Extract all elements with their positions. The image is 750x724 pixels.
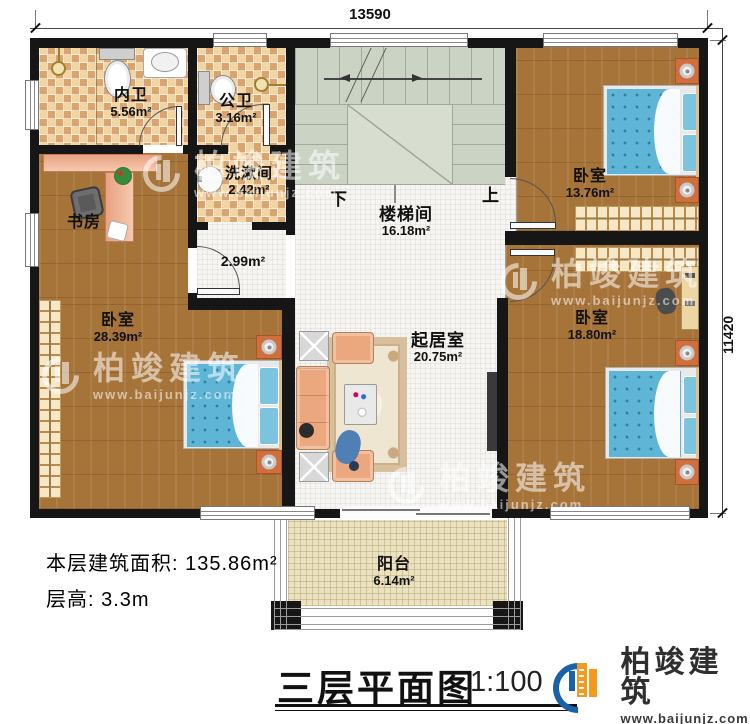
wall <box>270 145 286 154</box>
desk <box>43 154 158 172</box>
dresser <box>681 266 699 330</box>
dimension-value-top: 13590 <box>330 6 410 23</box>
nightstand <box>675 459 699 485</box>
balcony-rail <box>286 518 287 629</box>
bed <box>605 367 699 459</box>
sliding-door-panel <box>416 513 490 515</box>
balcony-rail <box>514 518 515 629</box>
lamp-icon <box>262 455 277 470</box>
bed <box>183 360 284 449</box>
balcony-rail <box>274 624 521 625</box>
bed-blanket <box>654 89 680 174</box>
balcony-rail <box>280 518 281 629</box>
floor-plan-canvas: 内卫 5.56m² 公卫 3.16m² 洗漱间 2.42m² 2.99m² 书房… <box>0 0 750 724</box>
lamp-icon <box>262 340 277 355</box>
room-label-bedroom-left: 卧室 28.39m² <box>94 312 142 344</box>
window <box>330 33 468 47</box>
wall <box>30 38 213 48</box>
room-label-washroom: 洗漱间 2.42m² <box>225 166 273 197</box>
room-area: 18.80m² <box>568 328 616 343</box>
lamp-icon <box>680 465 695 480</box>
room-area: 6.14m² <box>373 574 414 589</box>
stair-treads-top <box>295 47 505 104</box>
room-label-inner-bath: 内卫 5.56m² <box>110 87 151 119</box>
room-label-public-bath: 公卫 3.16m² <box>215 93 256 125</box>
room-area: 16.18m² <box>379 224 433 239</box>
sliding-door-panel <box>342 509 420 511</box>
room-name: 楼梯间 <box>379 205 433 224</box>
wall <box>30 130 39 213</box>
room-name: 卧室 <box>568 310 616 328</box>
title-underline <box>275 710 577 711</box>
floor-height-text: 层高: 3.3m <box>46 583 150 612</box>
shower-pipe <box>58 47 60 61</box>
lamp-icon <box>680 64 695 79</box>
dresser-item <box>685 273 695 278</box>
door-leaf <box>263 104 270 146</box>
coffee-table <box>344 384 377 425</box>
wall <box>497 298 508 509</box>
stair-treads-left <box>295 104 347 185</box>
shower-pipe <box>269 84 286 86</box>
wall <box>39 145 143 154</box>
side-table <box>299 331 329 361</box>
stair-landing <box>347 104 453 185</box>
door-leaf <box>510 222 556 229</box>
room-name: 起居室 <box>411 331 465 350</box>
wall <box>183 145 228 154</box>
room-name: 书房 <box>67 214 101 232</box>
room-name: 阳台 <box>373 556 414 574</box>
bed <box>603 85 699 176</box>
lamp-icon <box>680 346 695 361</box>
floor-area-text: 本层建筑面积: 135.86m² <box>46 547 278 576</box>
room-label-stairwell: 楼梯间 16.18m² <box>379 205 433 239</box>
window <box>25 80 39 130</box>
brand-block: 柏竣建筑 www.baijunjz.com <box>551 648 750 724</box>
floor-height-value: 3.3m <box>101 589 149 611</box>
stair-arrow-up-icon <box>412 74 422 82</box>
floor-height-label: 层高: <box>46 589 95 611</box>
nightstand <box>675 58 699 84</box>
bed-blanket <box>654 371 680 457</box>
sink-basin <box>151 52 179 72</box>
door-leaf <box>197 288 240 295</box>
wall <box>195 222 208 230</box>
balcony-rail <box>508 518 509 629</box>
stair-treads-right <box>453 104 505 185</box>
room-area: 20.75m² <box>411 350 465 365</box>
title-underline <box>275 704 577 707</box>
room-label-bedroom-top-right: 卧室 13.76m² <box>566 168 614 200</box>
wall <box>315 509 340 518</box>
window <box>200 506 315 520</box>
room-label-living-room: 起居室 20.75m² <box>411 331 465 365</box>
wall <box>188 298 295 310</box>
window <box>543 33 678 47</box>
toilet <box>99 48 135 60</box>
shower-head <box>51 61 66 76</box>
window <box>550 506 690 520</box>
room-label-bedroom-bottom-right: 卧室 18.80m² <box>568 310 616 342</box>
wall <box>252 222 286 230</box>
toilet <box>198 71 210 105</box>
room-area: 5.56m² <box>110 105 151 120</box>
wardrobe <box>39 300 61 498</box>
stair-down-label: 下 <box>330 185 347 210</box>
room-name: 公卫 <box>215 93 256 111</box>
sliding-door <box>340 506 492 518</box>
room-name: 洗漱间 <box>225 166 273 183</box>
window <box>25 213 39 267</box>
stair-arrow-down-icon <box>340 74 350 82</box>
bed-pillow <box>259 367 279 405</box>
dresser-item <box>685 301 695 306</box>
floor-area-label: 本层建筑面积: <box>46 553 179 575</box>
floor-area-value: 135.86m² <box>185 553 278 575</box>
nightstand <box>256 450 282 474</box>
shower-partition <box>96 48 97 144</box>
wall <box>505 231 699 245</box>
wall <box>267 38 330 48</box>
brand-name: 柏竣建筑 <box>621 648 750 708</box>
wall <box>690 509 708 518</box>
sofa <box>296 366 330 450</box>
stair-up-label: 上 <box>482 181 499 206</box>
room-area: 28.39m² <box>94 330 142 345</box>
stair-rail-line <box>394 185 396 203</box>
balcony-rail <box>520 518 521 629</box>
room-name: 卧室 <box>94 312 142 330</box>
wall <box>699 38 708 518</box>
room-area: 3.16m² <box>215 111 256 126</box>
room-label-balcony: 阳台 6.14m² <box>373 556 414 588</box>
room-label-study: 书房 <box>67 214 101 232</box>
plant <box>114 167 132 185</box>
door-leaf <box>510 249 555 256</box>
room-area: 2.42m² <box>225 183 273 198</box>
side-table <box>299 452 329 482</box>
lamp-icon <box>680 183 695 198</box>
room-area: 13.76m² <box>566 186 614 201</box>
tv <box>487 372 497 451</box>
shower-head <box>254 77 269 92</box>
room-name: 卧室 <box>566 168 614 186</box>
wall <box>282 310 295 509</box>
room-area: 2.99m² <box>221 254 265 270</box>
wall <box>30 38 39 80</box>
window <box>213 33 267 47</box>
balcony-rail <box>274 629 521 630</box>
wall <box>30 267 39 518</box>
person-head <box>349 461 359 471</box>
bed-pillow <box>259 407 279 445</box>
brand-url: www.baijunjz.com <box>621 711 750 724</box>
wall <box>286 47 295 235</box>
armchair <box>332 332 374 364</box>
dimension-value-right: 11420 <box>720 290 736 354</box>
decor-sphere <box>299 423 314 438</box>
room-name: 内卫 <box>110 87 151 105</box>
wall <box>30 509 200 518</box>
nightstand <box>675 177 699 203</box>
balcony-rail <box>274 608 521 609</box>
wall <box>492 509 550 518</box>
bed-blanket <box>232 364 258 447</box>
floor-boundary <box>505 245 506 298</box>
nightstand <box>675 340 699 366</box>
wall <box>505 47 516 177</box>
nightstand <box>256 335 282 359</box>
dimension-line-right <box>722 28 723 518</box>
door-leaf <box>176 106 182 146</box>
brand-logo-icon <box>551 655 613 719</box>
room-label-hallway: 2.99m² <box>221 254 265 270</box>
drawing-scale: 1:100 <box>470 666 543 699</box>
dimension-line-top <box>30 28 723 29</box>
balcony-rail <box>274 616 521 617</box>
wardrobe <box>575 206 699 231</box>
